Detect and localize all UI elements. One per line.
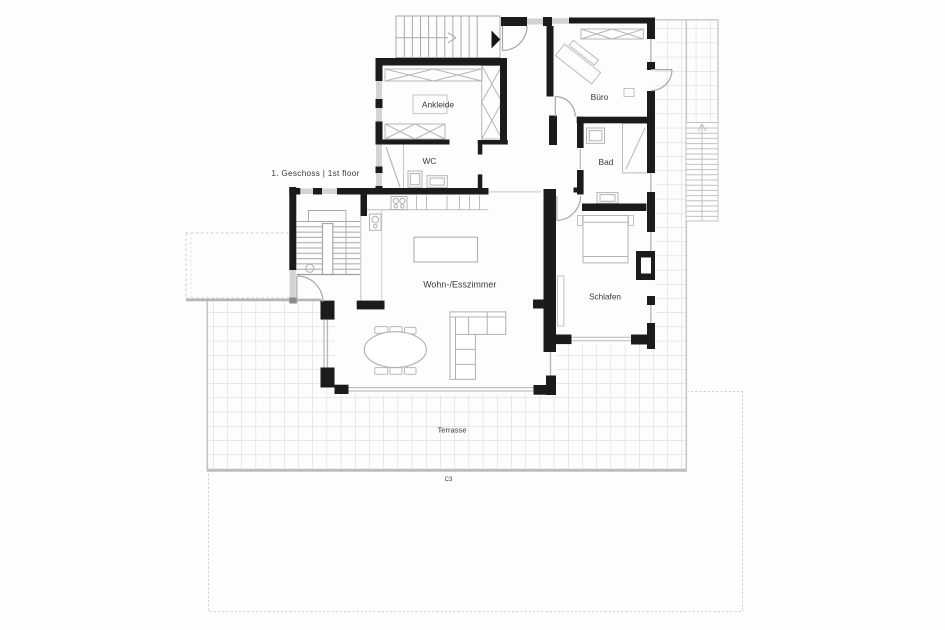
svg-text:Büro: Büro [591,92,609,102]
svg-text:WC: WC [423,156,437,166]
svg-text:1. Geschoss | 1st floor: 1. Geschoss | 1st floor [271,169,359,178]
svg-text:Bad: Bad [599,157,614,167]
svg-text:Wohn-/Esszimmer: Wohn-/Esszimmer [423,279,496,289]
svg-text:Schlafen: Schlafen [589,292,621,301]
svg-text:C3: C3 [445,477,453,483]
svg-text:Terrasse: Terrasse [437,425,466,434]
svg-text:Ankleide: Ankleide [422,99,454,109]
